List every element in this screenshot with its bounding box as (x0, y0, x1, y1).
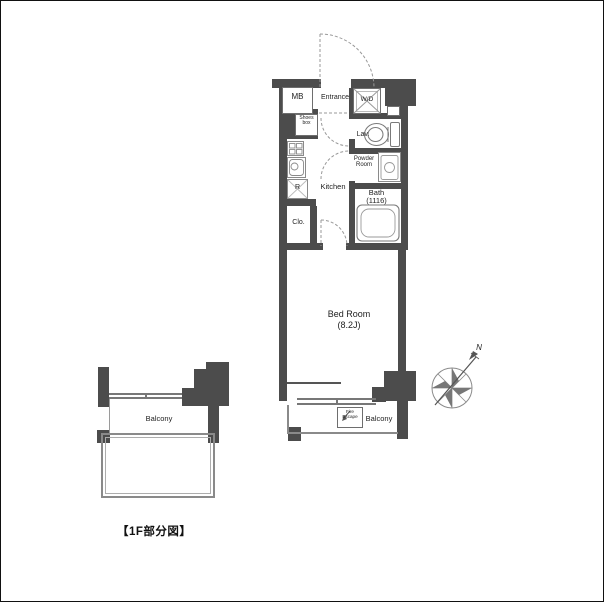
shoes-box-label-line2: box (295, 121, 318, 126)
mb-label: MB (282, 93, 313, 102)
bedroom-label-line1: Bed Room (297, 309, 401, 320)
lavatory-label: Lav. (350, 131, 376, 139)
lavatory-door-arc (321, 118, 349, 146)
refrigerator-label: R (287, 184, 308, 192)
kitchen-label: Kitchen (311, 183, 355, 191)
compass-icon (432, 351, 479, 408)
sink-icon (290, 160, 304, 176)
entrance-door-arc (320, 34, 374, 88)
entrance-label: Entrance (314, 94, 356, 102)
bedroom-label: Bed Room (8.2J) (297, 309, 401, 332)
powder-room-label-line2: Room (350, 162, 378, 168)
figure-caption: 【1F部分図】 (117, 523, 213, 539)
bath-label-line2: (1116) (354, 197, 399, 205)
stove-icon (290, 144, 303, 155)
floor-plan: MB Entrance W/D Shoes box Lav. Powder Ro… (0, 0, 604, 602)
shoes-box-label: Shoes box (295, 116, 318, 127)
powder-room-label: Powder Room (350, 156, 378, 169)
bedroom-label-line2: (8.2J) (297, 320, 401, 331)
washer-dryer-label: W/D (353, 96, 381, 103)
bathtub-icon (357, 205, 399, 241)
powder-room-door-arc (321, 151, 349, 179)
north-label: N (472, 344, 486, 353)
balcony-1f-label: Balcony (137, 415, 181, 423)
washbasin-icon (381, 156, 398, 180)
bath-label: Bath (1116) (354, 189, 399, 205)
closet-label: Clo. (285, 219, 312, 227)
bedroom-door-arc (321, 220, 347, 246)
balcony-label: Balcony (359, 415, 399, 423)
